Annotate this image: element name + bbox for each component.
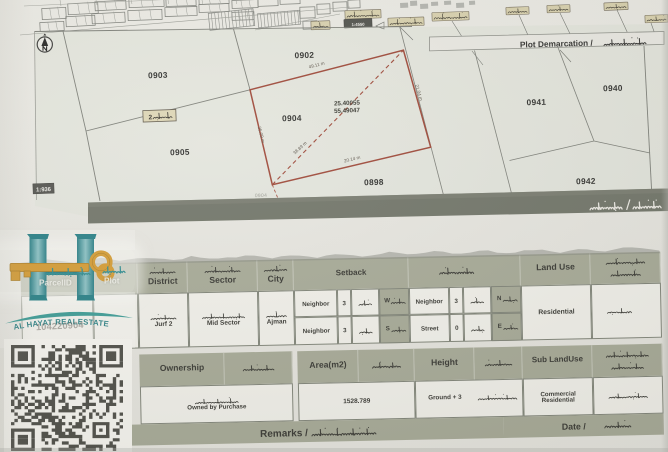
svg-text:0898: 0898 [364, 177, 384, 188]
svg-text:Plot: Plot [104, 277, 120, 286]
svg-text:2: 2 [148, 114, 152, 121]
svg-text:Plot Demarcation /: Plot Demarcation / [520, 38, 594, 50]
svg-text:0903: 0903 [148, 70, 168, 81]
svg-text:104220904: 104220904 [36, 320, 85, 333]
svg-text:55.49047: 55.49047 [334, 107, 361, 115]
svg-text:0905: 0905 [170, 147, 190, 158]
svg-text:0940: 0940 [603, 83, 623, 94]
svg-text:0904: 0904 [282, 113, 302, 124]
svg-text:1:4550: 1:4550 [351, 22, 365, 27]
svg-text:1:936: 1:936 [36, 187, 52, 194]
svg-text:0942: 0942 [576, 176, 596, 187]
svg-text:ParcelID: ParcelID [39, 279, 72, 288]
svg-text:0902: 0902 [294, 50, 314, 61]
svg-text:0941: 0941 [526, 97, 546, 108]
